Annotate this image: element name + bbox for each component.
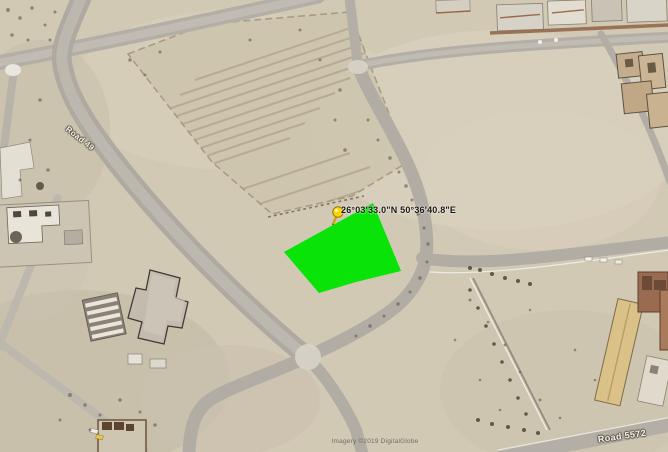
placemark-coordinates-label[interactable]: 26°03'33.0"N 50°36'40.8"E <box>341 205 456 215</box>
satellite-map[interactable]: 26°03'33.0"N 50°36'40.8"E Road 49 Road 5… <box>0 0 668 452</box>
satellite-imagery <box>0 0 668 452</box>
imagery-attribution-watermark: Imagery ©2019 DigitalGlobe <box>285 438 465 445</box>
